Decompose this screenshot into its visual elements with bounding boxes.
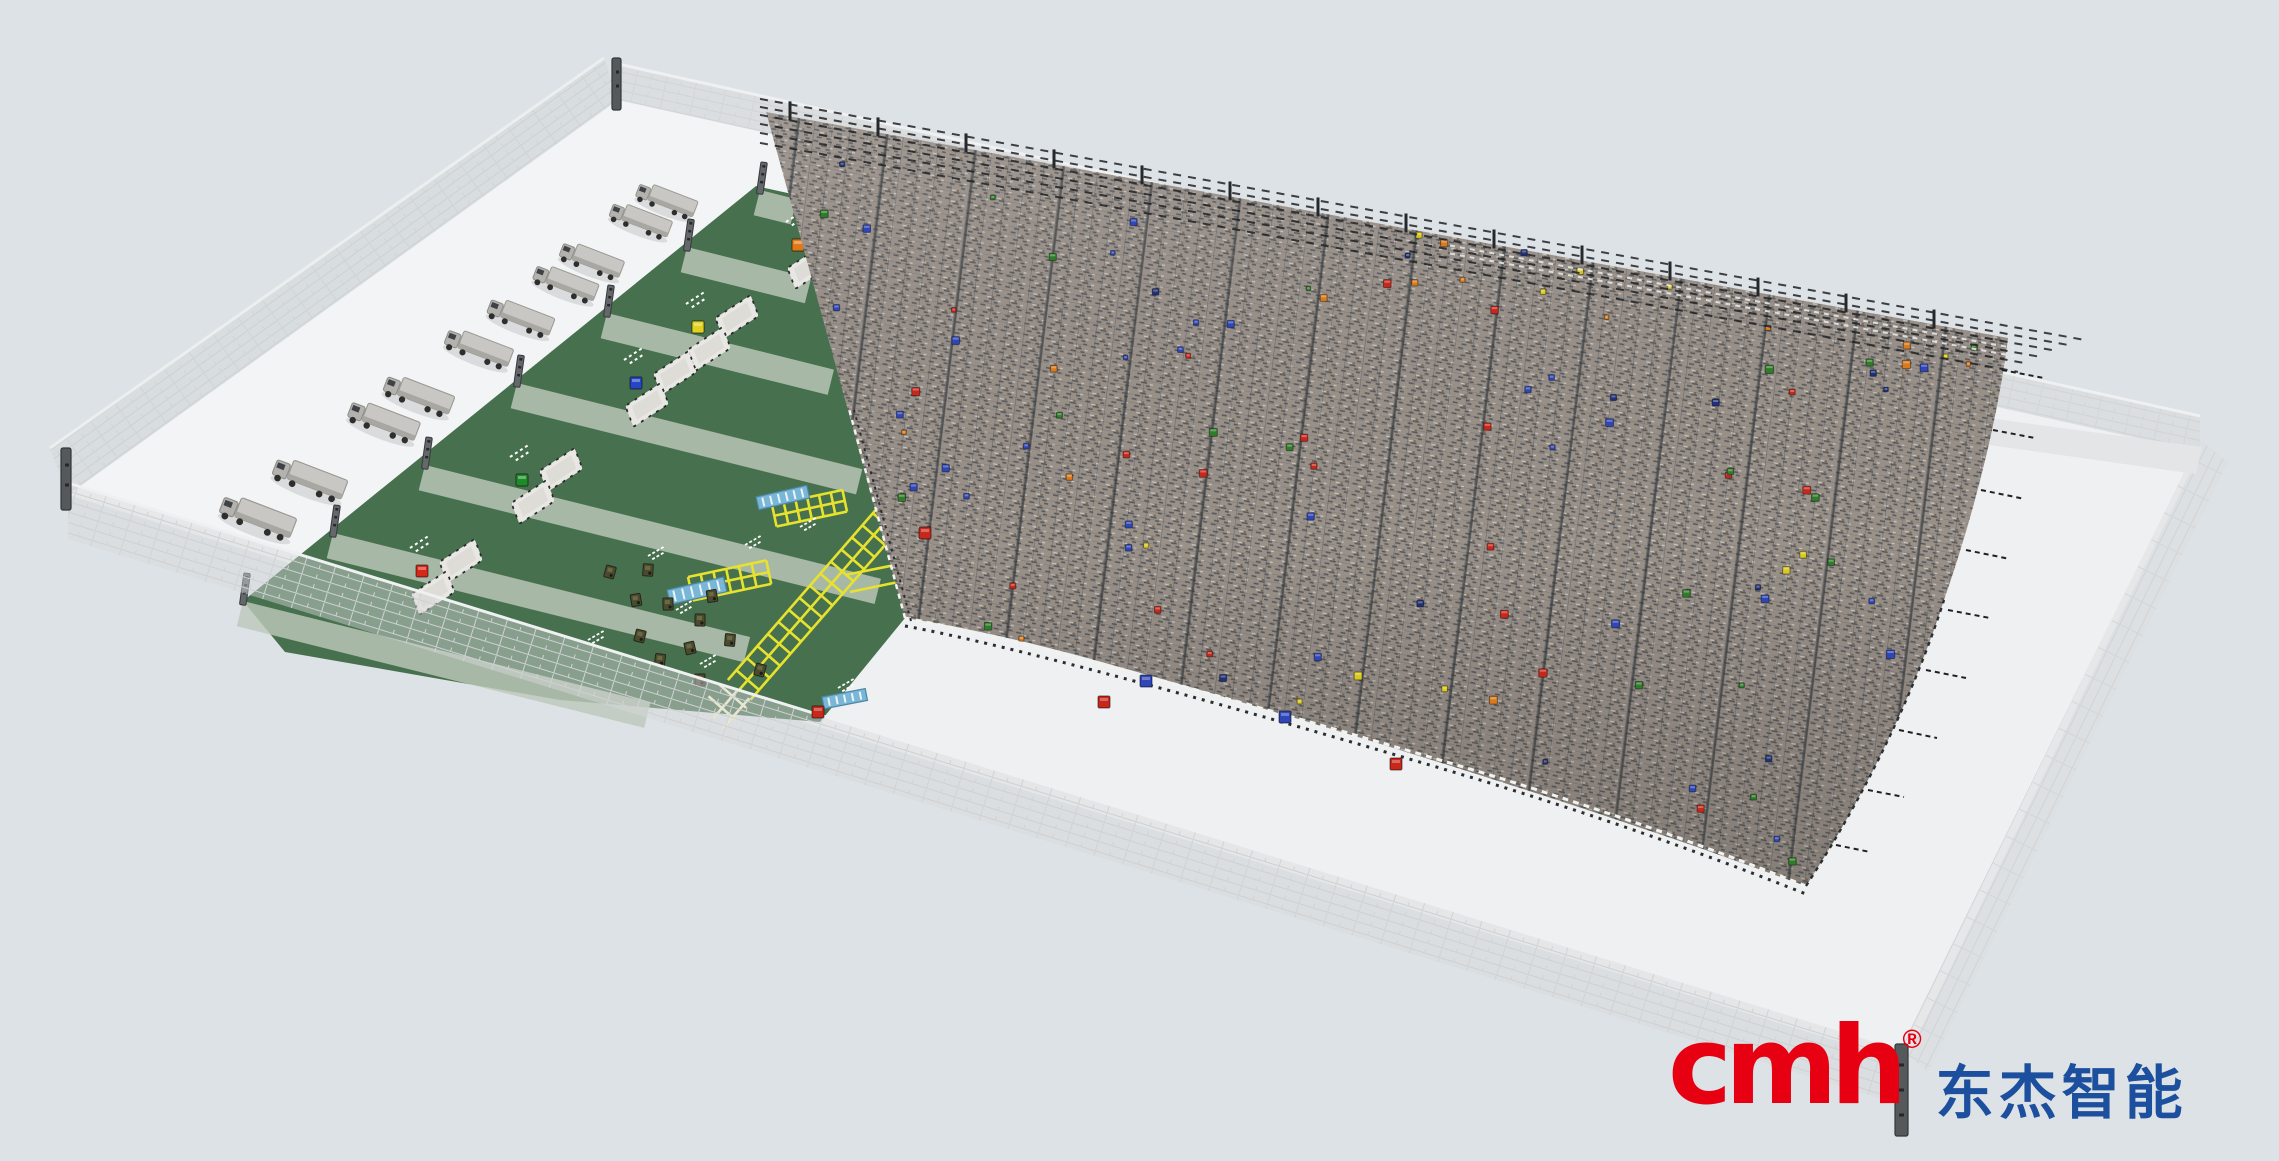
storage-box[interactable] bbox=[1227, 320, 1234, 327]
storage-box[interactable] bbox=[984, 623, 992, 631]
floor-box[interactable] bbox=[812, 706, 824, 718]
agv-robot[interactable] bbox=[695, 614, 705, 626]
storage-box[interactable] bbox=[1152, 289, 1159, 296]
storage-box[interactable] bbox=[1540, 289, 1546, 295]
storage-box[interactable] bbox=[1049, 253, 1056, 260]
storage-box[interactable] bbox=[1441, 240, 1448, 247]
storage-box[interactable] bbox=[1010, 583, 1016, 589]
storage-box[interactable] bbox=[1066, 474, 1072, 480]
agv-robot[interactable] bbox=[724, 634, 735, 647]
storage-box[interactable] bbox=[1199, 469, 1207, 477]
storage-box[interactable] bbox=[1412, 280, 1418, 286]
storage-box[interactable] bbox=[1789, 389, 1795, 395]
storage-box[interactable] bbox=[1727, 468, 1733, 474]
storage-box[interactable] bbox=[1712, 399, 1719, 406]
storage-box[interactable] bbox=[833, 305, 839, 311]
storage-box[interactable] bbox=[1207, 651, 1213, 657]
storage-box[interactable] bbox=[1800, 551, 1807, 558]
storage-box[interactable] bbox=[1320, 294, 1327, 301]
storage-box[interactable] bbox=[1442, 686, 1448, 692]
storage-box[interactable] bbox=[1186, 353, 1191, 358]
storage-box[interactable] bbox=[1766, 756, 1772, 762]
storage-box[interactable] bbox=[902, 430, 907, 435]
storage-box[interactable] bbox=[1125, 521, 1132, 528]
storage-box[interactable] bbox=[1610, 395, 1616, 401]
agv-robot[interactable] bbox=[643, 564, 654, 577]
agv-marker[interactable] bbox=[692, 321, 704, 333]
storage-box[interactable] bbox=[1354, 672, 1362, 680]
agv-robot[interactable] bbox=[706, 589, 718, 602]
storage-box[interactable] bbox=[1311, 463, 1317, 469]
storage-box[interactable] bbox=[1751, 794, 1757, 800]
agv-robot[interactable] bbox=[684, 641, 696, 655]
agv-robot[interactable] bbox=[663, 598, 673, 610]
floor-box[interactable] bbox=[1279, 711, 1291, 723]
storage-box[interactable] bbox=[942, 464, 949, 471]
storage-box[interactable] bbox=[1884, 387, 1889, 392]
storage-box[interactable] bbox=[1500, 610, 1508, 618]
storage-box[interactable] bbox=[1903, 342, 1910, 349]
storage-box[interactable] bbox=[952, 337, 960, 345]
storage-box[interactable] bbox=[1123, 355, 1128, 360]
storage-box[interactable] bbox=[1683, 590, 1691, 598]
storage-box[interactable] bbox=[1765, 365, 1773, 373]
storage-box[interactable] bbox=[1383, 280, 1391, 288]
storage-box[interactable] bbox=[1417, 600, 1424, 607]
storage-box[interactable] bbox=[1761, 595, 1769, 603]
storage-box[interactable] bbox=[1828, 559, 1835, 566]
storage-box[interactable] bbox=[1489, 696, 1497, 704]
agv-robot[interactable] bbox=[630, 593, 642, 607]
storage-box[interactable] bbox=[1193, 320, 1198, 325]
storage-box[interactable] bbox=[1143, 543, 1148, 548]
storage-box[interactable] bbox=[1920, 364, 1928, 372]
floor-box[interactable] bbox=[1098, 696, 1110, 708]
storage-box[interactable] bbox=[1869, 598, 1875, 604]
storage-box[interactable] bbox=[1783, 567, 1790, 574]
storage-box[interactable] bbox=[1487, 543, 1494, 550]
storage-box[interactable] bbox=[1123, 451, 1130, 458]
storage-box[interactable] bbox=[1866, 359, 1873, 366]
storage-box[interactable] bbox=[1297, 699, 1302, 704]
storage-box[interactable] bbox=[1314, 653, 1321, 660]
storage-box[interactable] bbox=[1774, 836, 1780, 842]
storage-box[interactable] bbox=[1604, 315, 1609, 320]
warehouse-3d-scene[interactable] bbox=[0, 0, 2279, 1161]
storage-box[interactable] bbox=[1902, 360, 1910, 368]
storage-box[interactable] bbox=[1130, 219, 1137, 226]
storage-box[interactable] bbox=[990, 195, 995, 200]
storage-box[interactable] bbox=[1549, 375, 1555, 381]
storage-box[interactable] bbox=[1789, 858, 1797, 866]
storage-box[interactable] bbox=[1697, 805, 1704, 812]
storage-box[interactable] bbox=[1550, 445, 1555, 450]
storage-box[interactable] bbox=[840, 162, 845, 167]
storage-box[interactable] bbox=[1306, 286, 1311, 291]
storage-box[interactable] bbox=[1405, 253, 1410, 258]
storage-box[interactable] bbox=[1606, 419, 1614, 427]
storage-box[interactable] bbox=[1019, 636, 1024, 641]
storage-box[interactable] bbox=[1739, 683, 1744, 688]
storage-box[interactable] bbox=[1056, 412, 1062, 418]
storage-box[interactable] bbox=[1886, 650, 1894, 658]
storage-box[interactable] bbox=[863, 225, 871, 233]
storage-box[interactable] bbox=[1755, 585, 1760, 590]
storage-box[interactable] bbox=[1050, 365, 1057, 372]
storage-box[interactable] bbox=[1635, 682, 1642, 689]
agv-robot[interactable] bbox=[634, 629, 647, 643]
storage-box[interactable] bbox=[1539, 669, 1547, 677]
storage-box[interactable] bbox=[964, 493, 970, 499]
storage-box[interactable] bbox=[1286, 444, 1293, 451]
floor-box[interactable] bbox=[1390, 758, 1402, 770]
storage-box[interactable] bbox=[896, 411, 903, 418]
agv-marker[interactable] bbox=[516, 474, 528, 486]
floor-box[interactable] bbox=[919, 527, 931, 539]
simulation-viewport[interactable]: cmh® 东杰智能 bbox=[0, 0, 2279, 1161]
storage-box[interactable] bbox=[1460, 277, 1465, 282]
storage-box[interactable] bbox=[912, 388, 920, 396]
storage-box[interactable] bbox=[1803, 486, 1811, 494]
storage-box[interactable] bbox=[1209, 428, 1217, 436]
storage-box[interactable] bbox=[1301, 434, 1308, 441]
storage-box[interactable] bbox=[898, 494, 906, 502]
storage-box[interactable] bbox=[1125, 545, 1132, 552]
storage-box[interactable] bbox=[1812, 494, 1820, 502]
agv-marker[interactable] bbox=[630, 377, 642, 389]
storage-box[interactable] bbox=[1023, 443, 1029, 449]
storage-box[interactable] bbox=[820, 210, 828, 218]
storage-box[interactable] bbox=[1307, 513, 1314, 520]
storage-box[interactable] bbox=[1870, 370, 1876, 376]
storage-box[interactable] bbox=[1110, 251, 1115, 256]
storage-box[interactable] bbox=[951, 308, 956, 313]
floor-box[interactable] bbox=[1140, 675, 1152, 687]
storage-box[interactable] bbox=[1612, 620, 1620, 628]
storage-box[interactable] bbox=[1484, 423, 1491, 430]
storage-box[interactable] bbox=[910, 484, 917, 491]
storage-box[interactable] bbox=[1220, 675, 1227, 682]
storage-box[interactable] bbox=[1525, 386, 1531, 392]
agv-marker[interactable] bbox=[416, 565, 428, 577]
storage-box[interactable] bbox=[1543, 759, 1548, 764]
storage-box[interactable] bbox=[1154, 606, 1161, 613]
storage-box[interactable] bbox=[1178, 347, 1184, 353]
storage-box[interactable] bbox=[1689, 785, 1696, 792]
storage-box[interactable] bbox=[1491, 306, 1499, 314]
storage-box[interactable] bbox=[1521, 249, 1527, 255]
